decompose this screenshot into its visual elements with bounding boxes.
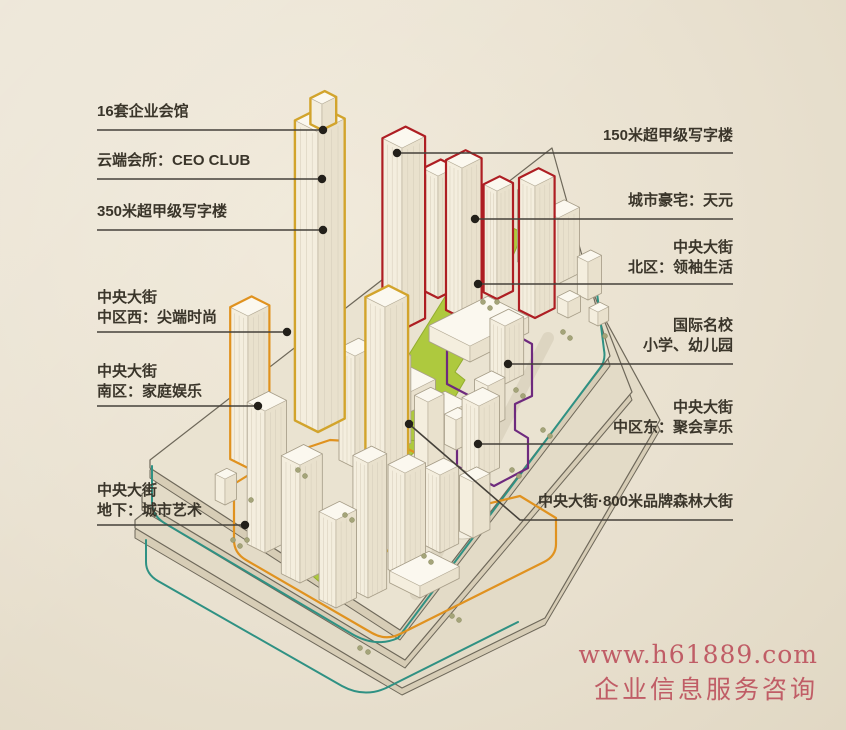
callout-text: 中央大街 (97, 362, 202, 382)
building (589, 302, 609, 326)
callout-forest-street: 中央大街·800米品牌森林大街 (538, 492, 733, 512)
callout-text: 150米超甲级写字楼 (603, 126, 733, 146)
callout-text: 国际名校 (643, 316, 733, 336)
building (281, 445, 322, 584)
callout-south-zone: 中央大街 南区：家庭娱乐 (97, 362, 202, 402)
callout-club-houses: 16套企业会馆 (97, 102, 189, 122)
callout-text: 中央大街 (97, 288, 217, 308)
callout-tower-350m: 350米超甲级写字楼 (97, 202, 227, 222)
building (310, 91, 336, 130)
watermark-caption: 企业信息服务咨询 (578, 670, 818, 706)
callout-text: 地下：城市艺术 (97, 501, 202, 521)
watermark: www.h61889.com 企业信息服务咨询 (578, 640, 818, 706)
callout-text: 中央大街·800米品牌森林大街 (538, 492, 733, 512)
building (462, 387, 499, 478)
callout-ceo-club: 云端会所：CEO CLUB (97, 151, 250, 171)
callout-text: 中央大街 (628, 238, 733, 258)
site-plan-diagram: 16套企业会馆 云端会所：CEO CLUB 350米超甲级写字楼 中央大街 中区… (0, 0, 846, 730)
callout-intl-school: 国际名校 小学、幼儿园 (643, 316, 733, 356)
building (484, 176, 513, 299)
building (519, 168, 555, 318)
callout-text: 云端会所：CEO CLUB (97, 151, 250, 171)
callout-text: 城市豪宅：天元 (628, 191, 733, 211)
callout-north-zone: 中央大街 北区：领袖生活 (628, 238, 733, 278)
callout-text: 350米超甲级写字楼 (97, 202, 227, 222)
building (577, 250, 601, 300)
callout-city-mansion: 城市豪宅：天元 (628, 191, 733, 211)
callout-text: 中央大街 (97, 481, 202, 501)
building (319, 501, 356, 608)
callout-underground: 中央大街 地下：城市艺术 (97, 481, 202, 521)
callout-text: 中央大街 (613, 398, 733, 418)
callout-central-east: 中央大街 中区东：聚会享乐 (613, 398, 733, 438)
callout-text: 小学、幼儿园 (643, 336, 733, 356)
building (425, 458, 459, 553)
callout-text: 16套企业会馆 (97, 102, 189, 122)
callout-central-west: 中央大街 中区西：尖端时尚 (97, 288, 217, 328)
callout-text: 北区：领袖生活 (628, 258, 733, 278)
building (353, 446, 387, 598)
building (247, 391, 286, 553)
building (295, 107, 345, 432)
callout-tower-150m: 150米超甲级写字楼 (603, 126, 733, 146)
building (460, 467, 490, 538)
callout-text: 中区西：尖端时尚 (97, 308, 217, 328)
building (215, 468, 236, 505)
watermark-url: www.h61889.com (578, 640, 818, 669)
callout-text: 中区东：聚会享乐 (613, 418, 733, 438)
callout-text: 南区：家庭娱乐 (97, 382, 202, 402)
building (415, 387, 444, 468)
building (557, 290, 580, 318)
building (446, 150, 482, 318)
